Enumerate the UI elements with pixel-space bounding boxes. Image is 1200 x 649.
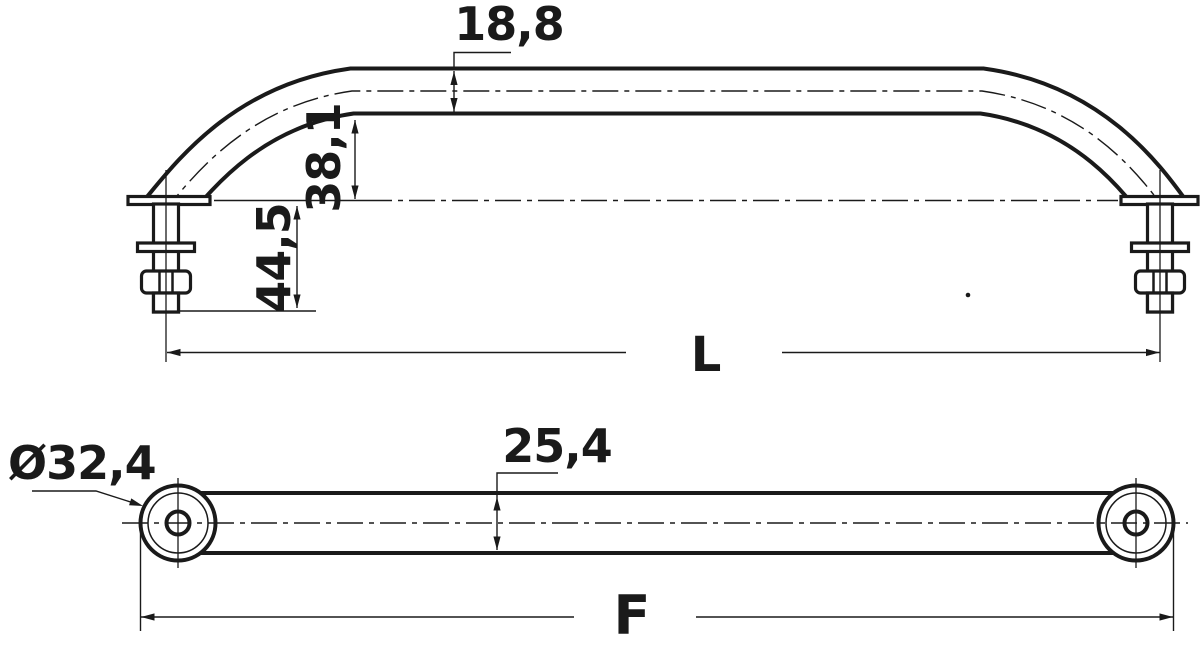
print-speck: [966, 293, 971, 298]
dim-label-end-base-diameter: Ø32,4: [8, 436, 156, 490]
dim-label-overall-length: L: [691, 327, 722, 383]
dim-label-tube-width: 25,4: [502, 419, 612, 473]
technical-drawing-page: 18,8 38,1 44,5 L Ø32,4 25,4 F: [0, 0, 1200, 649]
dim-label-underside-clearance: 38,1: [297, 103, 351, 213]
dim-label-stud-length: 44,5: [247, 203, 301, 313]
dim-label-tube-section-height: 18,8: [454, 0, 564, 51]
dim-label-fixing-centres: F: [614, 584, 651, 647]
handrail-drawing: 18,8 38,1 44,5 L Ø32,4 25,4 F: [0, 0, 1200, 649]
